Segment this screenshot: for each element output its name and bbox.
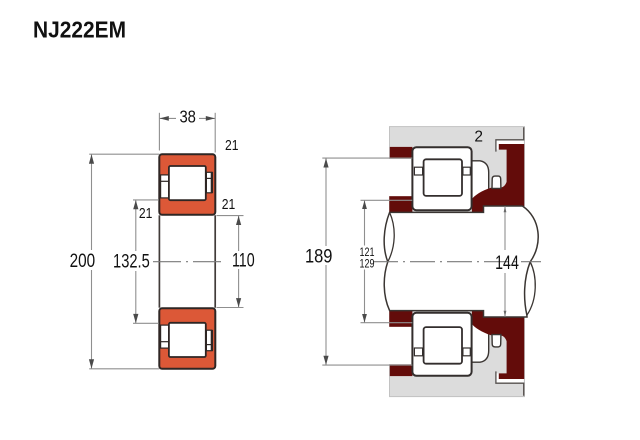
- svg-text:2: 2: [474, 129, 483, 146]
- svg-text:144: 144: [495, 253, 519, 274]
- svg-text:21: 21: [222, 197, 236, 213]
- svg-text:21: 21: [225, 138, 239, 154]
- svg-text:132.5: 132.5: [113, 252, 150, 273]
- svg-text:21: 21: [139, 206, 153, 222]
- svg-text:NJ222EM: NJ222EM: [33, 17, 126, 43]
- svg-text:38: 38: [179, 107, 196, 127]
- svg-text:200: 200: [70, 251, 96, 272]
- svg-text:110: 110: [232, 251, 255, 272]
- svg-text:129: 129: [360, 257, 375, 271]
- svg-text:189: 189: [305, 246, 333, 267]
